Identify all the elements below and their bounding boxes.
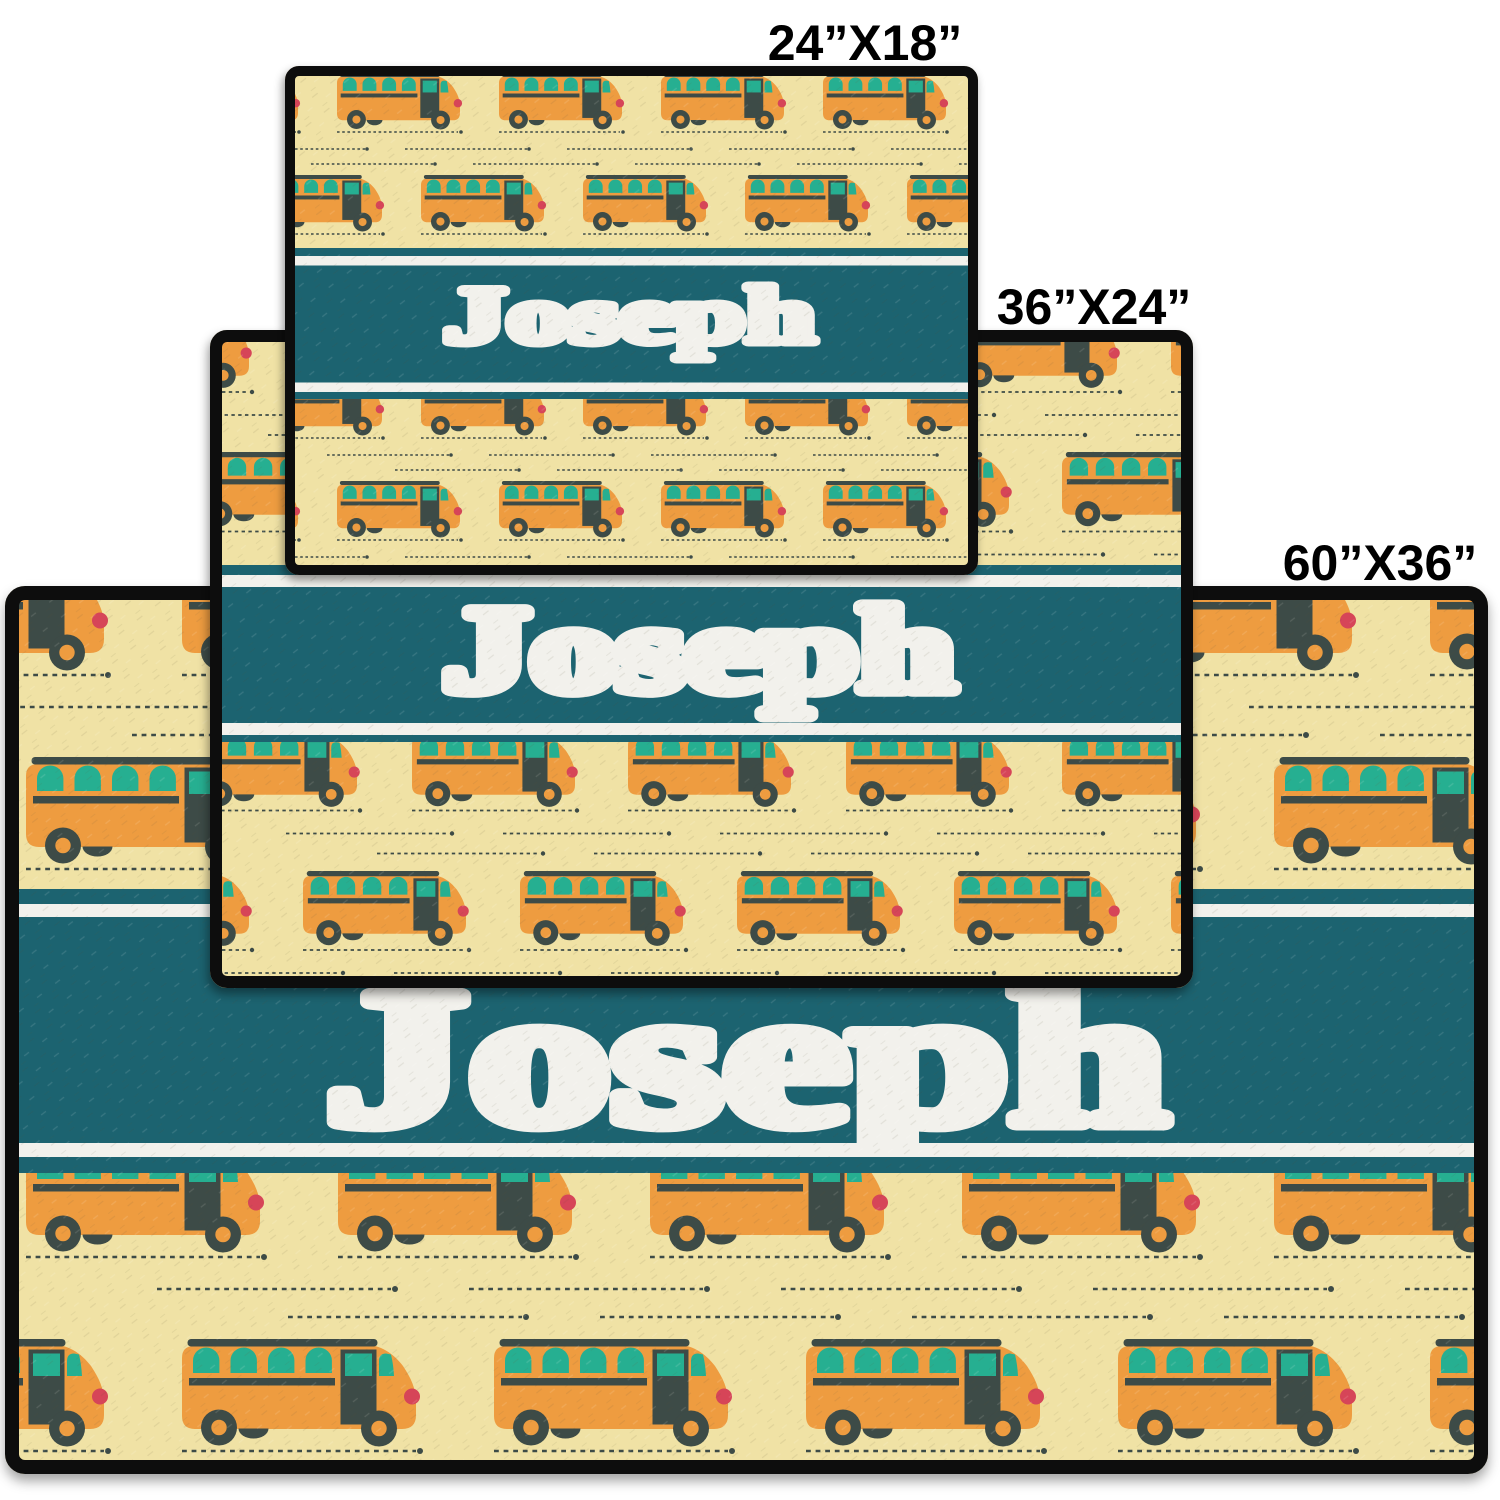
svg-text:24”X18”: 24”X18” [768,15,963,71]
svg-text:60”X36”: 60”X36” [1283,535,1478,591]
svg-text:36”X24”: 36”X24” [997,279,1192,335]
